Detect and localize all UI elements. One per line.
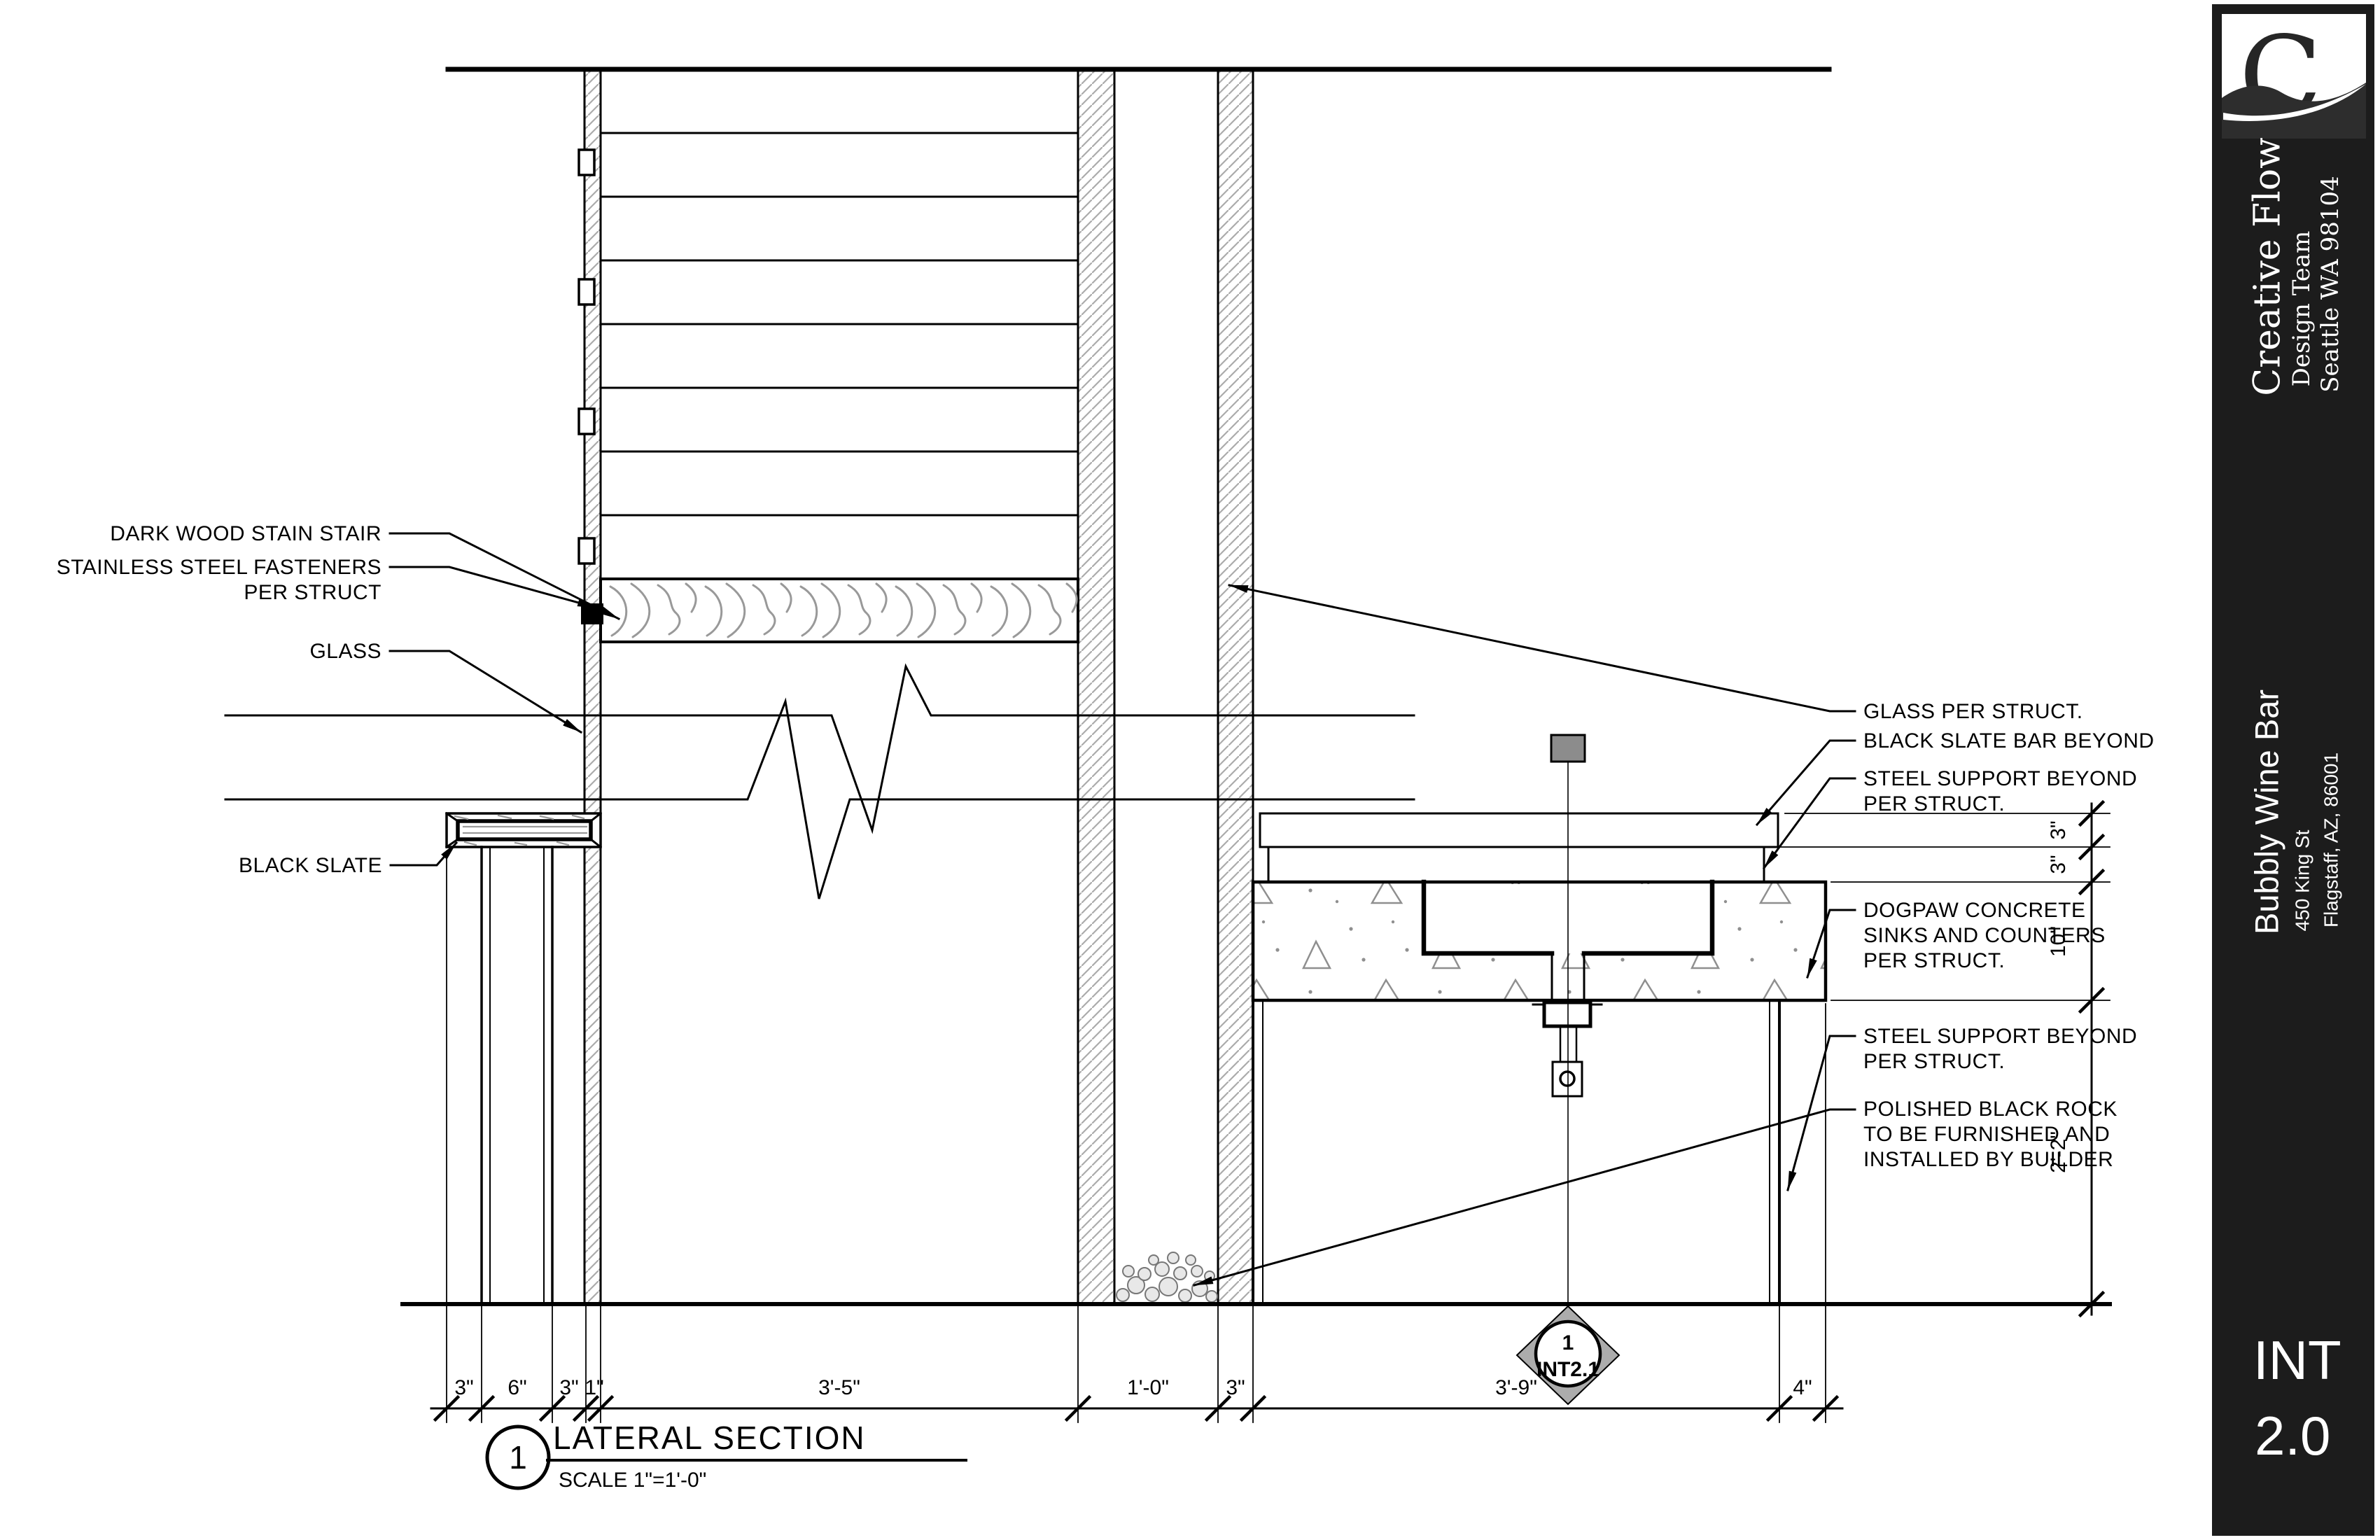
detail-marker-number: 1 xyxy=(1562,1331,1574,1354)
sheet-number-line1: INT xyxy=(2253,1329,2341,1391)
label-concrete-3: PER STRUCT. xyxy=(1863,949,2005,972)
black-slate-shelf xyxy=(447,813,601,1304)
label-rock-1: POLISHED BLACK ROCK xyxy=(1863,1098,2117,1121)
sheet-number-line2: 2.0 xyxy=(2255,1405,2330,1466)
leader-fasteners xyxy=(390,567,596,608)
dimension-line-right: 3" 3" 10" 2'-2" xyxy=(2047,802,2103,1315)
view-scale: SCALE 1"=1'-0" xyxy=(559,1469,706,1492)
label-steel-lower-1: STEEL SUPPORT BEYOND xyxy=(1863,1025,2137,1048)
label-glass-left: GLASS xyxy=(309,640,381,663)
leader-glass-right xyxy=(1229,585,1855,711)
label-concrete-1: DOGPAW CONCRETE xyxy=(1863,899,2086,922)
glass-wall-middle xyxy=(1078,69,1114,1304)
shelf-pedestal xyxy=(482,847,552,1304)
stair-treads xyxy=(601,133,1078,515)
label-steel-lower-2: PER STRUCT. xyxy=(1863,1050,2005,1073)
glass-wall-left xyxy=(584,69,601,1304)
dim-3ft5: 3'-5" xyxy=(818,1376,860,1399)
gravel-rock-fill xyxy=(1116,1252,1217,1302)
view-title-text: LATERAL SECTION xyxy=(553,1420,866,1456)
dim-3in-a: 3" xyxy=(454,1376,473,1399)
annotations-left: DARK WOOD STAIN STAIR STAINLESS STEEL FA… xyxy=(57,522,382,877)
label-fasteners-1: STAINLESS STEEL FASTENERS xyxy=(57,556,381,579)
section-drawing: 3" 6" 3" 1" 3'-5" 1'-0" 3" 3'-9" 4" 3" 3… xyxy=(57,69,2155,1492)
shutoff-valve xyxy=(1553,1062,1582,1096)
label-rock-2: TO BE FURNISHED AND xyxy=(1863,1123,2110,1146)
dim-right-3in-b: 3" xyxy=(2047,855,2070,874)
label-stair: DARK WOOD STAIN STAIR xyxy=(110,522,381,545)
project-address-1: 450 King St xyxy=(2291,829,2313,931)
dim-right-3in-a: 3" xyxy=(2047,820,2070,839)
lateral-section-sheet: 3" 6" 3" 1" 3'-5" 1'-0" 3" 3'-9" 4" 3" 3… xyxy=(0,0,2380,1540)
dim-3in-b: 3" xyxy=(559,1376,578,1399)
glass-wall-right xyxy=(1218,69,1253,1304)
steel-support-band-beyond xyxy=(1268,847,1764,882)
project-name: Bubbly Wine Bar xyxy=(2248,689,2285,934)
dim-3ft9: 3'-9" xyxy=(1495,1376,1537,1399)
leader-steel-lower xyxy=(1788,1036,1855,1190)
firm-name: Creative Flow xyxy=(2247,137,2289,395)
leader-glass-left xyxy=(390,651,581,732)
detail-marker-sheet: INT2.1 xyxy=(1536,1358,1599,1381)
faucet xyxy=(1551,735,1585,762)
bar-counter-assembly xyxy=(1253,735,1826,1322)
label-rock-3: INSTALLED BY BUILDER xyxy=(1863,1148,2113,1171)
firm-logo: C xyxy=(2222,13,2366,139)
label-black-slate: BLACK SLATE xyxy=(239,854,382,877)
label-slate-bar: BLACK SLATE BAR BEYOND xyxy=(1863,729,2155,752)
label-concrete-2: SINKS AND COUNTERS xyxy=(1863,924,2106,947)
label-glass-right: GLASS PER STRUCT. xyxy=(1863,700,2083,723)
label-fasteners-2: PER STRUCT xyxy=(244,581,381,604)
title-block: C Creative Flow Design Team Seattle WA 9… xyxy=(2212,4,2374,1536)
view-number: 1 xyxy=(509,1439,527,1476)
dimension-line-bottom: 3" 6" 3" 1" 3'-5" 1'-0" 3" 3'-9" 4" xyxy=(431,1376,1842,1420)
project-address-2: Flagstaff, AZ, 86001 xyxy=(2320,752,2341,927)
firm-team: Design Team xyxy=(2288,231,2316,387)
dim-4in: 4" xyxy=(1793,1376,1812,1399)
dim-1ft0: 1'-0" xyxy=(1127,1376,1169,1399)
dim-6in: 6" xyxy=(507,1376,526,1399)
label-steel-upper-2: PER STRUCT. xyxy=(1863,792,2005,815)
label-steel-upper-1: STEEL SUPPORT BEYOND xyxy=(1863,767,2137,790)
view-title: 1 LATERAL SECTION SCALE 1"=1'-0" xyxy=(487,1420,966,1492)
firm-address: Seattle WA 98104 xyxy=(2316,176,2344,393)
wood-tread-section xyxy=(601,579,1078,642)
dim-1in: 1" xyxy=(584,1376,603,1399)
dim-3in-c: 3" xyxy=(1226,1376,1245,1399)
slate-bar-top-beyond xyxy=(1260,813,1778,847)
base-cabinet xyxy=(1253,1000,1779,1303)
annotations-right: GLASS PER STRUCT. BLACK SLATE BAR BEYOND… xyxy=(1863,700,2155,1171)
